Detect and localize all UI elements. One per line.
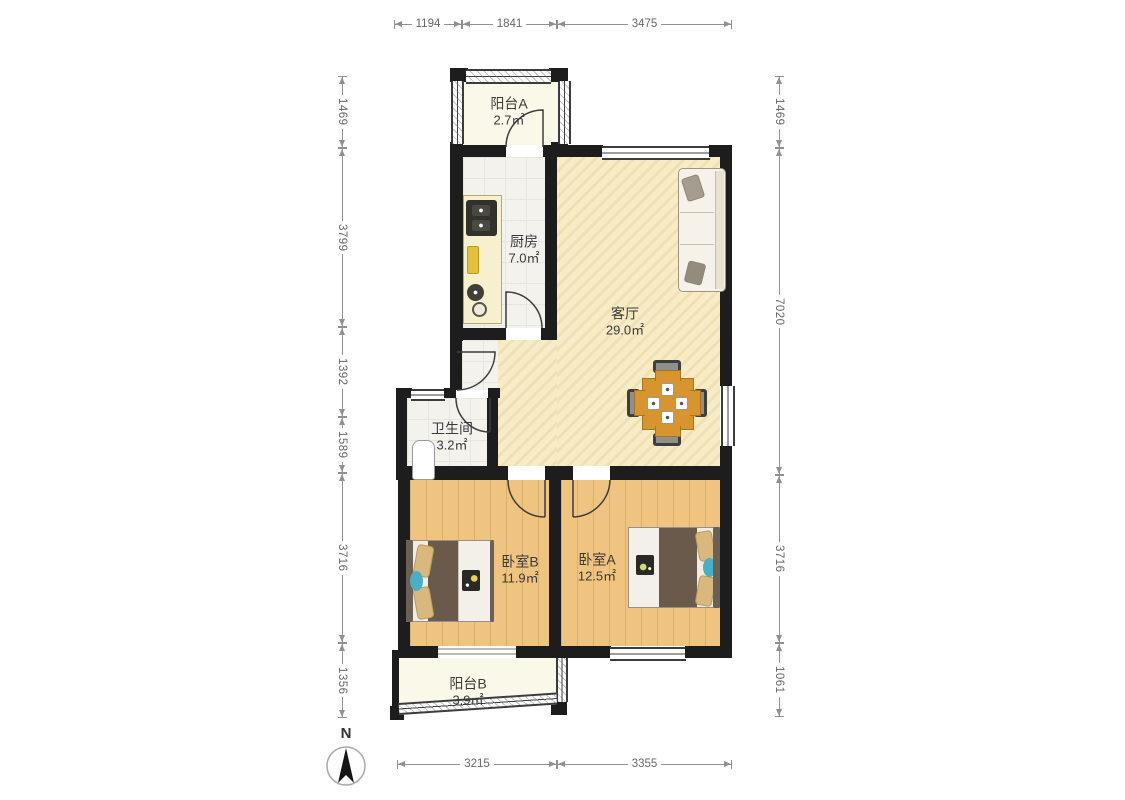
room-name: 厨房 <box>508 232 539 250</box>
kettle <box>472 302 487 317</box>
north-label: N <box>323 726 369 742</box>
wall <box>685 646 732 658</box>
kitchen-sink <box>467 284 484 301</box>
dim-bottom-2: 3355 <box>557 758 732 770</box>
kitchen-counter <box>463 195 502 324</box>
wall-post <box>549 68 568 82</box>
dim-label: 1841 <box>497 18 523 30</box>
dim-label: 3716 <box>336 544 348 572</box>
room-label-bedroom-b: 卧室B 11.9㎡ <box>501 552 538 587</box>
dining-set <box>627 360 707 446</box>
dining-table-tab <box>655 370 681 381</box>
bed-footboard <box>490 540 494 622</box>
window-bathroom <box>411 389 445 401</box>
north-compass: N <box>323 726 369 793</box>
dining-table-tab <box>634 390 645 416</box>
bed-b <box>406 540 494 622</box>
room-label-living-room: 客厅 29.0㎡ <box>606 304 644 339</box>
window-balcony-a-top <box>466 69 551 84</box>
dim-label: 3799 <box>336 224 348 252</box>
dim-right-4: 1061 <box>773 643 785 717</box>
room-area: 29.0㎡ <box>606 323 644 340</box>
dim-right-3: 3716 <box>773 475 785 643</box>
room-name: 卧室A <box>578 550 616 568</box>
bed-headboard <box>713 527 720 608</box>
bed-tray <box>636 555 654 575</box>
wall <box>450 145 506 157</box>
room-name: 客厅 <box>606 304 644 322</box>
sofa-cushion-divider <box>680 212 714 213</box>
dim-label: 3475 <box>632 18 658 30</box>
dim-label: 1392 <box>336 358 348 386</box>
wall <box>720 478 732 658</box>
wall <box>541 328 557 340</box>
room-name: 卧室B <box>501 552 538 570</box>
stove-burner <box>472 205 490 216</box>
room-name: 阳台A <box>490 94 527 112</box>
dim-top-3: 3475 <box>557 18 732 30</box>
sliding-door-balcony-b <box>438 649 516 654</box>
plate <box>675 397 688 410</box>
bed-tray <box>462 570 480 591</box>
wall <box>557 145 603 157</box>
dim-left-5: 3716 <box>336 473 348 643</box>
wall-between-bedrooms <box>549 480 561 658</box>
room-label-kitchen: 厨房 7.0㎡ <box>508 232 539 267</box>
cutting-board <box>467 246 479 274</box>
dim-right-2: 7020 <box>773 148 785 475</box>
floor-living-corridor <box>498 340 557 466</box>
room-name: 卫生间 <box>431 419 473 437</box>
window-balcony-a-left <box>451 81 464 144</box>
wall-post <box>709 145 732 157</box>
room-label-bedroom-a: 卧室A 12.5㎡ <box>578 550 616 585</box>
dim-label: 7020 <box>773 298 785 326</box>
wall <box>488 388 500 398</box>
dim-right-1: 1469 <box>773 76 785 148</box>
window-living-top <box>602 146 710 160</box>
dim-left-4: 1589 <box>336 417 348 473</box>
room-name: 阳台B <box>449 674 486 692</box>
window-balcony-b-right <box>556 658 568 702</box>
sofa-cushion-divider <box>680 244 714 245</box>
dim-label: 1356 <box>336 667 348 695</box>
room-area: 7.0㎡ <box>508 251 539 268</box>
wall <box>444 388 456 398</box>
sofa <box>678 168 726 292</box>
room-area: 11.9㎡ <box>501 571 538 588</box>
wall <box>516 646 561 658</box>
room-label-bathroom: 卫生间 3.2㎡ <box>431 419 473 454</box>
floor-plan: 1194 1841 3475 3215 3355 1469 3799 1392 … <box>0 0 1125 800</box>
bed-duvet <box>659 528 697 607</box>
dining-table-tab <box>690 390 701 416</box>
stove-burner <box>472 220 490 231</box>
dim-label: 1469 <box>336 98 348 126</box>
dim-label: 3355 <box>632 758 658 770</box>
dim-label: 3716 <box>773 545 785 573</box>
compass-icon <box>325 742 367 788</box>
plate <box>661 411 674 424</box>
dim-label: 1469 <box>773 98 785 126</box>
dim-label: 1589 <box>336 431 348 459</box>
wall <box>610 466 732 480</box>
dim-top-2: 1841 <box>462 18 557 30</box>
wall <box>450 157 463 341</box>
dim-bottom-1: 3215 <box>397 758 557 770</box>
wall <box>561 646 611 658</box>
wall-balcony-b-left <box>392 650 399 710</box>
wall <box>398 646 438 658</box>
dim-left-1: 1469 <box>336 76 348 148</box>
dim-left-3: 1392 <box>336 327 348 417</box>
room-label-balcony-b: 阳台B 3.9㎡ <box>449 674 486 709</box>
room-area: 3.9㎡ <box>449 693 486 710</box>
room-label-balcony-a: 阳台A 2.7㎡ <box>490 94 527 129</box>
sofa-back <box>715 171 724 289</box>
dim-label: 1194 <box>416 18 441 30</box>
plate <box>647 397 660 410</box>
window-living-right <box>721 386 735 446</box>
wall <box>545 157 557 328</box>
window-balcony-a-right <box>558 81 571 144</box>
dim-left-6: 1356 <box>336 643 348 718</box>
dim-top-1: 1194 <box>394 18 462 30</box>
bed-a <box>628 527 720 608</box>
window-bedroom-a <box>610 647 686 661</box>
bed-cushion <box>410 571 423 591</box>
dim-left-2: 3799 <box>336 148 348 327</box>
dim-label: 1061 <box>773 666 785 694</box>
room-area: 12.5㎡ <box>578 569 616 586</box>
wall <box>450 328 506 340</box>
floor-vestibule <box>462 340 498 390</box>
wall <box>545 466 573 480</box>
dining-table-tab <box>655 426 681 437</box>
room-area: 3.2㎡ <box>431 438 473 455</box>
room-area: 2.7㎡ <box>490 113 527 130</box>
dim-label: 3215 <box>464 758 490 770</box>
wall <box>450 340 462 390</box>
plate <box>661 383 674 396</box>
